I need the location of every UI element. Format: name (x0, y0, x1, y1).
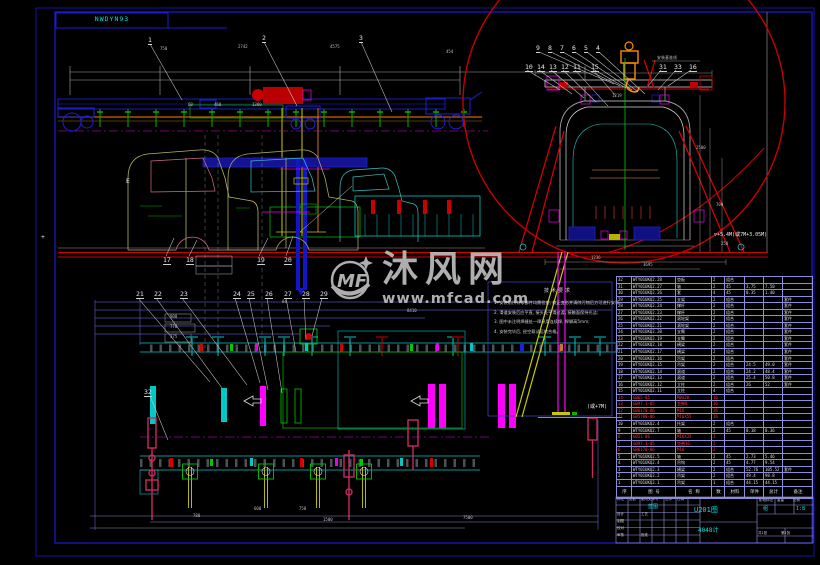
annotation: 10 (525, 64, 533, 72)
annotation: 84 (282, 300, 287, 304)
title-block-blueprint: 蓝图 (648, 505, 658, 510)
annotation: 600 (254, 507, 261, 511)
annotation: 3 (359, 35, 363, 43)
annotation: 校对 (617, 527, 624, 531)
annotation: 750 (160, 47, 167, 51)
annotation: 重量 (777, 499, 784, 503)
annotation: 460 (214, 103, 221, 107)
annotation: 19 (257, 257, 265, 265)
annotation: 4 (596, 45, 600, 53)
title-block-scale: 1:8 (796, 507, 805, 512)
bom-cell: 单件 (745, 487, 764, 498)
annotation: 安装基准线 (657, 56, 677, 60)
annotation: 2742 (238, 45, 248, 49)
watermark: MF 沐风网 www.mfcad.com (324, 250, 529, 307)
annotation: 8410 (407, 309, 417, 313)
bom-cell: 数 (712, 487, 725, 498)
annotation: 9 (536, 45, 540, 53)
annotation: 11 (573, 64, 581, 72)
annotation: 16 (689, 64, 697, 72)
bom-cell: 总计 (764, 487, 783, 498)
title-block-group: 组 (763, 507, 768, 512)
annotation: 更改文件号 (641, 498, 659, 502)
annotation: 阶段标记 (759, 499, 773, 503)
annotation: 1500 (323, 518, 333, 522)
annotation: 签字 (665, 498, 672, 502)
annotation: 22 (154, 291, 162, 299)
annotation: 33 (674, 64, 682, 72)
annotation: 7500 (463, 516, 473, 520)
annotation: 7 (560, 45, 564, 53)
annotation: 25 (247, 291, 255, 299)
detail-circle-linework (463, 0, 785, 269)
annotation: 8 (548, 45, 552, 53)
annotation: 共1张 (758, 532, 767, 536)
svg-text:MF: MF (337, 271, 368, 292)
annotation: 处数 (629, 498, 636, 502)
title-block-drawing-no: U201图 (694, 507, 718, 514)
parts-table-body: 32WTY01UKQ2.28垫板2组合31WTY01UKQ2.27轴2453.7… (617, 277, 812, 498)
frame-label: NWDYN93 (58, 15, 166, 26)
annotation: 20 (284, 257, 292, 265)
annotation: 28 (302, 291, 310, 299)
annotation: 21 (136, 291, 144, 299)
annotation: 2500 (696, 146, 706, 150)
annotation: 制图 (617, 520, 624, 524)
annotation: 设计 (617, 513, 624, 517)
annotation: 3695 (643, 263, 653, 267)
annotation: 250 (721, 242, 728, 246)
bom-cell: 名 称 (676, 487, 712, 498)
annotation: 日期 (677, 498, 684, 502)
annotation: 375 (170, 335, 177, 339)
annotation: 比例 (793, 499, 800, 503)
annotation: + (41, 234, 45, 241)
bom-row: 序图 号名 称数材料单件总计备注 (617, 487, 812, 498)
parts-table: 32WTY01UKQ2.28垫板2组合31WTY01UKQ2.27轴2453.7… (616, 276, 813, 499)
bom-cell: 图 号 (632, 487, 676, 498)
annotation: 14 (537, 64, 545, 72)
annotation: 15 (591, 64, 599, 72)
annotation: 1380 (252, 103, 262, 107)
annotation: 工艺 (641, 513, 648, 517)
annotation: 17 (163, 257, 171, 265)
annotation: ▽+5.4M(或7M+3.05M) (714, 233, 767, 238)
annotation: 60 (188, 103, 193, 107)
annotation: 1219 (612, 94, 622, 98)
annotation: 23 (180, 291, 188, 299)
annotation: 批准 (641, 534, 648, 538)
annotation: (或+7M) (587, 405, 607, 410)
annotation: 780 (193, 514, 200, 518)
annotation: 1236 (591, 256, 601, 260)
annotation: 454 (446, 50, 453, 54)
annotation: 24 (233, 291, 241, 299)
note-line: 3. 图中未注明焊缝处一律采用连续焊, 焊脚高5mm; (494, 317, 622, 327)
annotation: 12 (561, 64, 569, 72)
annotation: 32 (144, 389, 152, 397)
bom-cell: 材料 (725, 487, 745, 498)
title-block-project: 4048计 (698, 528, 718, 534)
annotation: 6 (572, 45, 576, 53)
watermark-site-name: 沐风网 (382, 250, 529, 290)
annotation: 第1张 (781, 532, 790, 536)
annotation: 750 (299, 507, 306, 511)
cad-drawing-page: NWDYN93 12375027424575454604601380E+1718… (0, 0, 820, 565)
annotation: E (126, 178, 130, 185)
annotation: 5 (584, 45, 588, 53)
annotation: 770 (170, 325, 177, 329)
annotation: 18 (186, 257, 194, 265)
annotation: 2 (262, 35, 266, 43)
watermark-site-url: www.mfcad.com (382, 291, 529, 307)
annotation: 4575 (330, 45, 340, 49)
annotation: 26 (265, 291, 273, 299)
annotation: 700 (716, 203, 723, 207)
annotation: 审核 (617, 534, 624, 538)
annotation: 27 (284, 291, 292, 299)
annotation: 900 (170, 315, 177, 319)
bom-cell: 备注 (783, 487, 812, 498)
annotation: 13 (549, 64, 557, 72)
annotation: 31 (659, 64, 667, 72)
note-line: 4. 安装完毕后, 经空载试运转合格。 (494, 327, 622, 337)
annotation: 1 (148, 37, 152, 45)
annotation: 标记 (617, 498, 624, 502)
bom-cell: 序 (617, 487, 632, 498)
note-line: 2. 滑道安装后应平直, 接头处平滑过渡, 接触面保持光洁; (494, 308, 622, 318)
mfcad-logo-icon: MF (324, 250, 376, 306)
